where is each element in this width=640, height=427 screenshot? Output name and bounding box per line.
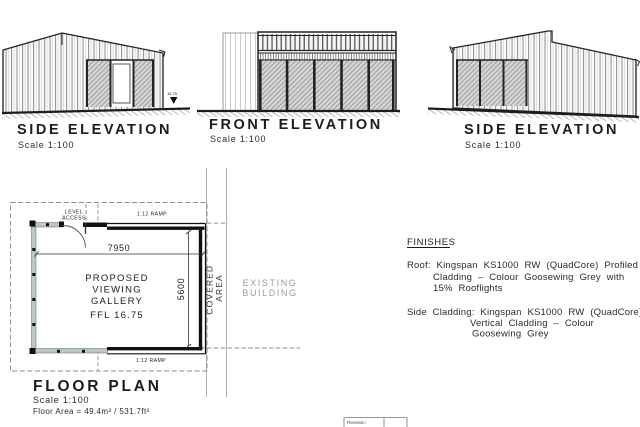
dimension-depth: 5600 xyxy=(176,230,191,348)
ramp-label-top: 1:12 RAMP xyxy=(137,212,167,218)
title-block-fragment: Revision: xyxy=(344,418,407,427)
front-elevation-drawing: FRONT ELEVATION Scale 1:100 xyxy=(197,32,400,144)
roof-spec-line2: Cladding – Colour Goosewing Grey with xyxy=(433,272,624,283)
front-elevation-scale: Scale 1:100 xyxy=(210,134,266,144)
drawing-sheet: 16.75 SIDE ELEVATION Scale 1:100 FRONT E… xyxy=(0,0,640,427)
front-elevation-title: FRONT ELEVATION xyxy=(209,117,383,133)
revision-label: Revision: xyxy=(347,420,366,425)
side-elevation-left-title: SIDE ELEVATION xyxy=(17,122,172,138)
dim-5600: 5600 xyxy=(176,278,186,300)
door xyxy=(113,64,130,103)
roof-spec-line1: Roof: Kingspan KS1000 RW (QuadCore) Prof… xyxy=(407,260,638,271)
door-swing xyxy=(63,223,86,248)
room-label-line3: GALLERY xyxy=(91,296,143,307)
room-label-line1: PROPOSED xyxy=(85,273,148,284)
wall-posts xyxy=(30,221,86,355)
covered-area-word1: COVERED xyxy=(205,265,215,315)
side-elevation-left-drawing: 16.75 SIDE ELEVATION Scale 1:100 xyxy=(2,33,190,150)
ramp-label-bottom: 1:12 RAMP xyxy=(136,358,166,364)
finishes-heading: FINISHES xyxy=(407,237,456,248)
architectural-drawing: 16.75 SIDE ELEVATION Scale 1:100 FRONT E… xyxy=(0,0,640,427)
side-elevation-right-scale: Scale 1:100 xyxy=(465,140,521,150)
floor-plan-drawing: 7950 5600 PROPOSED VIEWING GALLERY FFL 1… xyxy=(11,168,301,416)
covered-area-word2: AREA xyxy=(214,274,224,302)
floor-plan-title: FLOOR PLAN xyxy=(33,378,162,395)
dim-7950: 7950 xyxy=(108,243,130,253)
level-marker-label: 16.75 xyxy=(167,91,178,96)
floor-area-note: Floor Area = 49.4m² / 531.7ft² xyxy=(33,407,150,416)
dimension-width: 7950 xyxy=(35,243,206,257)
room-label-line2: VIEWING xyxy=(92,285,142,296)
ffl-label: FFL 16.75 xyxy=(90,310,144,321)
glazed-screen xyxy=(259,61,395,112)
covered-area-label: COVERED AREA xyxy=(205,261,225,314)
roof-spec-line3: 15% Rooflights xyxy=(433,283,503,294)
existing-building-line2: BUILDING xyxy=(242,288,297,298)
side-elevation-left-scale: Scale 1:100 xyxy=(18,140,74,150)
side-cladding-spec-line1: Side Cladding: Kingspan KS1000 RW (QuadC… xyxy=(407,307,640,318)
floor-plan-scale: Scale 1:100 xyxy=(33,395,89,405)
finishes-note: FINISHES Roof: Kingspan KS1000 RW (QuadC… xyxy=(407,237,640,340)
cladding-band xyxy=(259,53,395,60)
existing-building-line1: EXISTING xyxy=(243,278,298,288)
rooflight-band xyxy=(259,34,395,50)
level-marker-icon xyxy=(170,97,178,104)
side-cladding-spec-line3: Goosewing Grey xyxy=(472,329,549,340)
level-access-line2: ACCESS xyxy=(62,216,86,222)
side-elevation-right-title: SIDE ELEVATION xyxy=(464,122,619,138)
side-elevation-right-drawing: SIDE ELEVATION Scale 1:100 xyxy=(428,31,640,150)
side-cladding-spec-line2: Vertical Cladding – Colour xyxy=(470,318,594,329)
